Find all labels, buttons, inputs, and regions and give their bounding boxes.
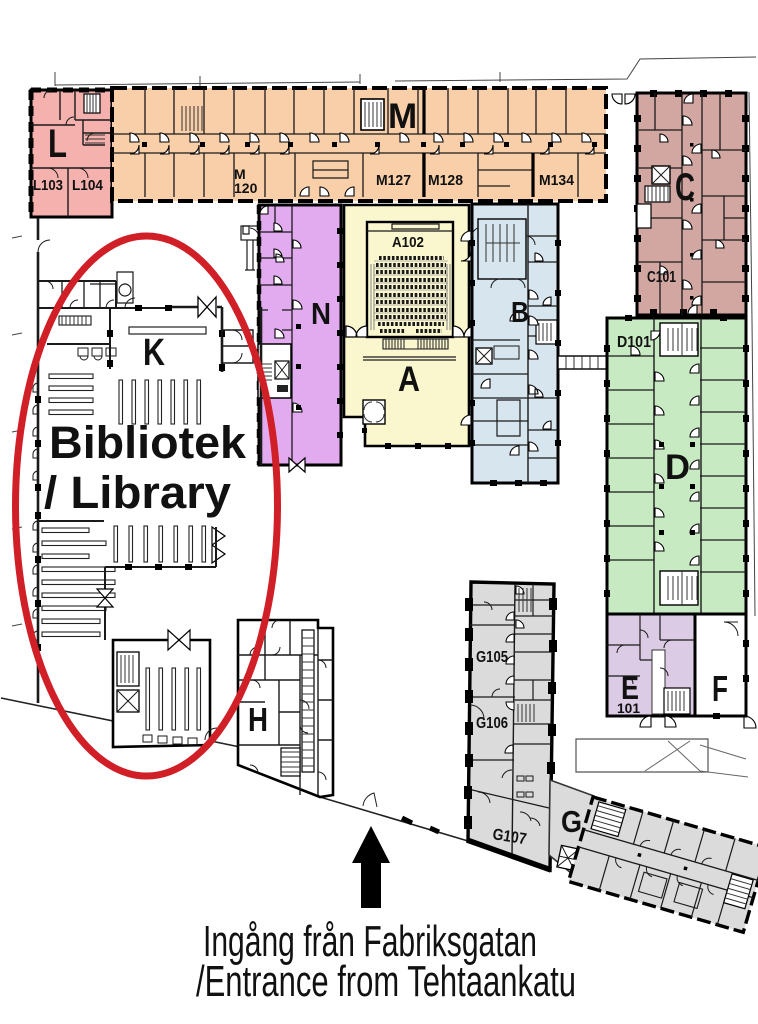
svg-text:B: B	[511, 297, 529, 329]
svg-text:K: K	[143, 332, 165, 374]
svg-text:G: G	[561, 804, 582, 839]
svg-text:A102: A102	[392, 234, 424, 251]
svg-text:H: H	[248, 701, 268, 738]
svg-text:C101: C101	[647, 269, 676, 286]
svg-text:C: C	[675, 166, 695, 209]
svg-text:A: A	[398, 360, 420, 399]
svg-text:L103: L103	[33, 177, 63, 194]
svg-text:M127: M127	[376, 172, 411, 189]
svg-text:M134: M134	[539, 172, 575, 189]
svg-text:D101: D101	[617, 334, 651, 351]
svg-text:101: 101	[617, 700, 640, 716]
svg-text:/ Library: / Library	[44, 467, 231, 518]
svg-text:M128: M128	[428, 172, 463, 189]
svg-text:N: N	[311, 296, 331, 331]
svg-text:Bibliotek: Bibliotek	[49, 417, 247, 468]
svg-text:/Entrance from Tehtaankatu: /Entrance from Tehtaankatu	[196, 957, 576, 1006]
svg-text:L104: L104	[72, 177, 104, 194]
svg-text:120: 120	[234, 180, 258, 196]
svg-text:M: M	[388, 97, 417, 136]
svg-text:G106: G106	[476, 715, 508, 732]
svg-text:D: D	[665, 448, 690, 487]
svg-text:F: F	[712, 668, 728, 709]
svg-text:L: L	[48, 122, 67, 166]
svg-text:G105: G105	[476, 649, 508, 666]
